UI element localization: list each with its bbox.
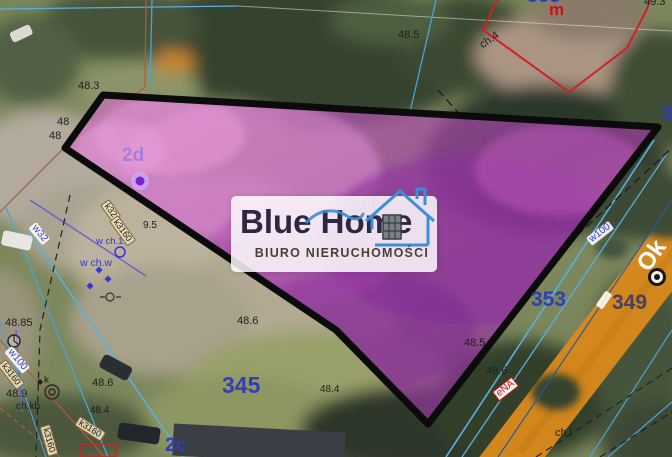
swoosh-icon xyxy=(305,206,365,230)
watermark-subtitle: BIURO NIERUCHOMOŚCI xyxy=(255,246,429,260)
manhole-icon xyxy=(8,335,20,347)
watermark-blue-home: Blue Home BIURO NIERUCHOMOŚCI xyxy=(231,196,437,272)
road-survey-marker-icon xyxy=(648,268,666,286)
map-view: 48.348482d48.549.3333mch.434435333452c48… xyxy=(0,0,672,457)
parcel-2d-marker xyxy=(131,172,149,190)
house-icon xyxy=(361,183,441,253)
